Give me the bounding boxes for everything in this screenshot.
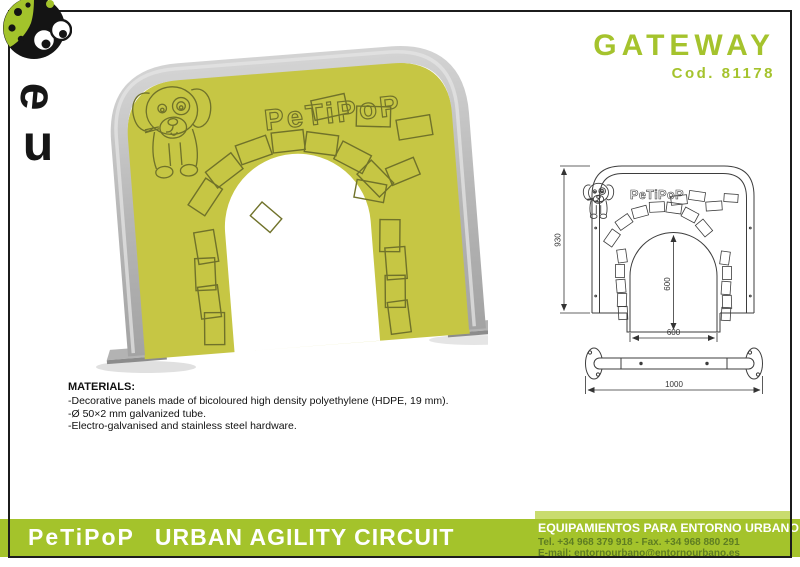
header: GATEWAY Cod. 81178 xyxy=(593,30,775,82)
footer-bar: PeTiPoP URBAN AGILITY CIRCUIT EQUIPAMIEN… xyxy=(0,519,800,557)
footer-contact-block: EQUIPAMIENTOS PARA ENTORNO URBANO Tel. +… xyxy=(538,522,799,559)
product-code: Cod. 81178 xyxy=(593,65,775,82)
dim-label-1000: 1000 xyxy=(665,380,683,389)
materials-item-hardware: -Electro-galvanised and stainless steel … xyxy=(68,420,449,433)
dim-label-930: 930 xyxy=(554,233,563,247)
footer-email: E-mail: entornourbano@entornourbano.es xyxy=(538,548,799,559)
materials-item-tube: -Ø 50×2 mm galvanized tube. xyxy=(68,408,449,421)
ladybug-logo xyxy=(0,0,72,66)
materials-heading: MATERIALS: xyxy=(68,381,449,393)
logo-letter-e: e xyxy=(13,73,63,121)
technical-drawing: PeTiPoP 930 600 600 1000 xyxy=(524,136,796,424)
page-title: GATEWAY xyxy=(593,30,775,62)
eu-logo-letters: e u xyxy=(16,74,60,166)
top-view xyxy=(586,348,763,379)
drawing-bricks xyxy=(604,190,739,320)
footer-series: URBAN AGILITY CIRCUIT xyxy=(155,524,455,551)
drawing-brand-engraving: PeTiPoP xyxy=(630,188,684,202)
dim-label-600-width: 600 xyxy=(667,328,681,337)
materials-section: MATERIALS: -Decorative panels made of bi… xyxy=(68,381,449,433)
drawing-dog-engraving xyxy=(583,183,613,218)
product-photo: PeTiPoP xyxy=(76,16,488,376)
dim-label-600-height: 600 xyxy=(663,277,672,291)
footer-tel-fax: Tel. +34 968 379 918 - Fax. +34 968 880 … xyxy=(538,537,799,548)
footer-brand: PeTiPoP xyxy=(28,524,135,551)
logo-letter-u: u xyxy=(16,120,60,166)
footer-brand-line: PeTiPoP URBAN AGILITY CIRCUIT xyxy=(28,524,454,551)
footer-company: EQUIPAMIENTOS PARA ENTORNO URBANO xyxy=(538,522,799,536)
materials-item-panels: -Decorative panels made of bicoloured hi… xyxy=(68,395,449,408)
